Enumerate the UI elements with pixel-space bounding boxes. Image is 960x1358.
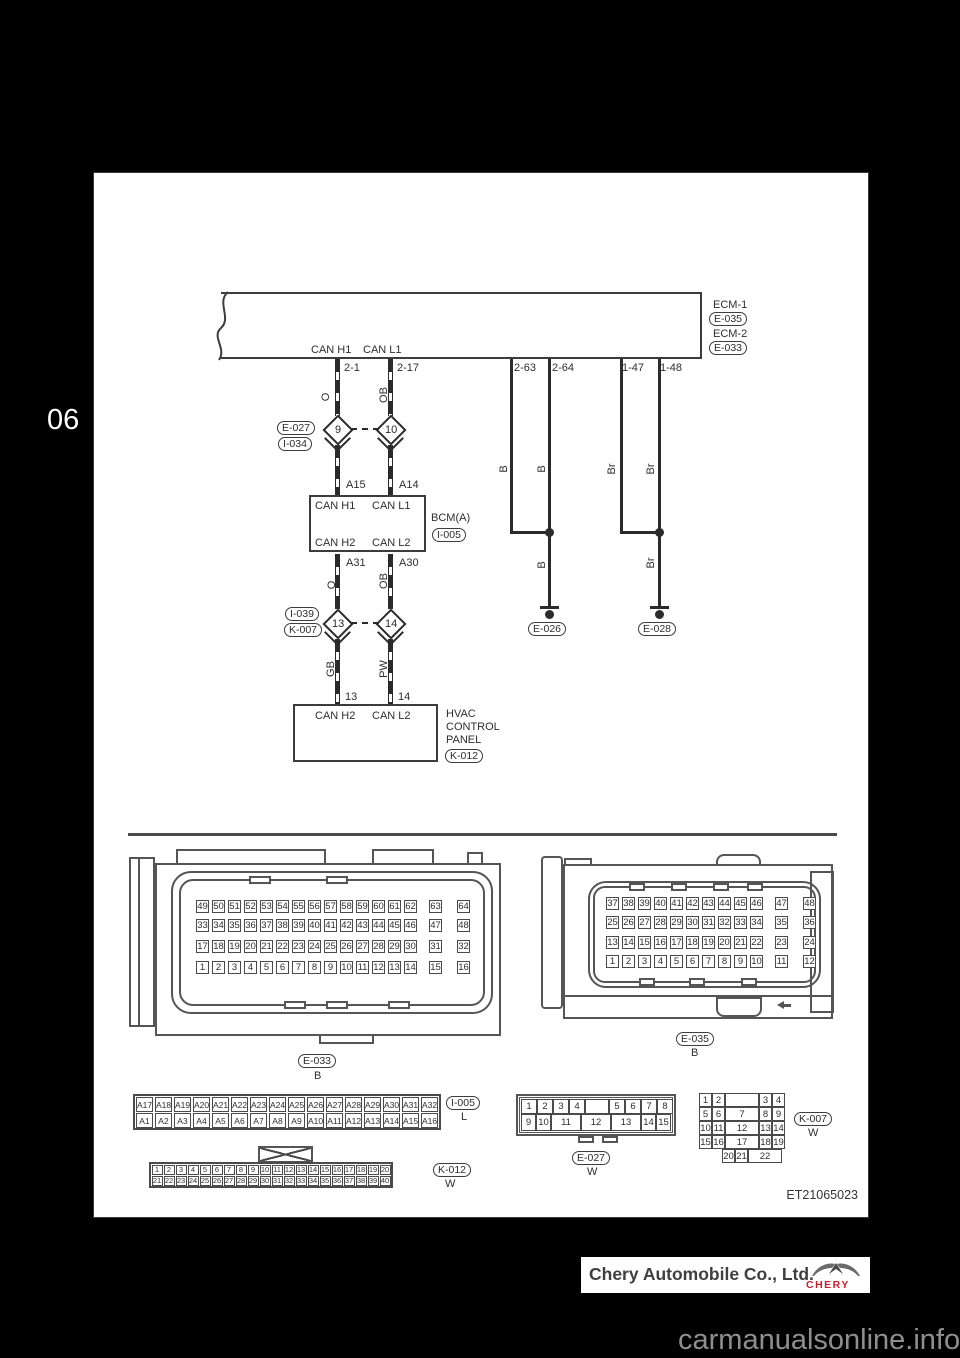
pin-cell: 20	[380, 1165, 391, 1175]
e033-housing-bracket-line	[138, 859, 140, 1025]
pin-cell: 20	[718, 936, 731, 949]
pin-cell: 29	[248, 1176, 259, 1186]
e033-notch	[326, 1001, 348, 1009]
pin-cell: 55	[292, 900, 305, 913]
e035-code: E-035	[676, 1032, 714, 1046]
ground-dot-icon	[655, 610, 664, 619]
pin-cell: A14	[383, 1113, 400, 1128]
bcm-connector-code: I-005	[432, 528, 466, 542]
pin-cell: 42	[686, 897, 699, 910]
pin-cell: A11	[326, 1113, 343, 1128]
pin-cell: 11	[356, 961, 369, 974]
e027-code: E-027	[572, 1151, 610, 1165]
wire-color-o: O	[325, 574, 339, 596]
pin-cell: 11	[712, 1121, 725, 1135]
wire-color-b: B	[535, 554, 549, 576]
watermark: carmanualsonline.info	[678, 1324, 960, 1357]
k012-keyway	[258, 1146, 313, 1163]
pin-cell: 51	[228, 900, 241, 913]
pin-cell: 36	[244, 919, 257, 932]
pin-cell: 28	[372, 940, 385, 953]
pin-cell: 15	[429, 961, 442, 974]
ground-code-e026: E-026	[528, 622, 566, 636]
pin-cell: 15	[320, 1165, 331, 1175]
pin-cell: 16	[457, 961, 470, 974]
pin-cell: 16	[712, 1135, 725, 1149]
pin-cell: 12	[581, 1114, 611, 1131]
pin-2-64: 2-64	[552, 362, 574, 374]
pin-cell: 36	[803, 916, 816, 929]
pin-cell: 3	[759, 1093, 772, 1107]
e027-pin-row: 9101112131415	[521, 1114, 671, 1131]
pin-cell: 16	[332, 1165, 343, 1175]
ground-dot-icon	[545, 610, 554, 619]
pin-a14: A14	[399, 479, 419, 491]
e033-notch	[326, 876, 348, 884]
pin-cell: 14	[641, 1114, 656, 1131]
pin-cell: 35	[775, 916, 788, 929]
pin-2-17: 2-17	[397, 362, 419, 374]
ecm1-connector-code: E-035	[709, 312, 747, 326]
k012-color: W	[445, 1178, 455, 1190]
pin-cell: 17	[196, 940, 209, 953]
pin-2-63: 2-63	[514, 362, 536, 374]
pin-cell: 50	[212, 900, 225, 913]
pin-cell: 1	[196, 961, 209, 974]
splice-code-e027: E-027	[277, 421, 315, 435]
section-divider	[128, 833, 837, 836]
wire-color-b: B	[497, 458, 511, 480]
pin-cell: 47	[429, 919, 442, 932]
pin-cell: A25	[288, 1097, 305, 1112]
pin-cell: 54	[276, 900, 289, 913]
pin-cell: 31	[272, 1176, 283, 1186]
can-h1-wire	[335, 445, 340, 495]
pin-cell: 38	[276, 919, 289, 932]
pin-cell: 63	[429, 900, 442, 913]
pin-cell: 40	[380, 1176, 391, 1186]
ecm2-connector-code: E-033	[709, 341, 747, 355]
pin-cell: 14	[404, 961, 417, 974]
pin-cell: 2	[537, 1099, 553, 1114]
pin-cell: 22	[748, 1149, 782, 1163]
pin-cell: 46	[404, 919, 417, 932]
pin-cell: 11	[272, 1165, 283, 1175]
e035-notch	[671, 883, 687, 891]
pin-cell: 1	[152, 1165, 163, 1175]
pin-cell: 47	[775, 897, 788, 910]
pin-cell: 32	[457, 940, 470, 953]
k007-pin-row: 1011121314	[699, 1121, 785, 1135]
pin-cell: 6	[212, 1165, 223, 1175]
pin-cell: 1	[606, 955, 619, 968]
pin-cell: 27	[356, 940, 369, 953]
ecm-can-l1-label: CAN L1	[363, 344, 402, 356]
pin-cell: 7	[224, 1165, 235, 1175]
pin-cell: 38	[622, 897, 635, 910]
pin-cell: 22	[276, 940, 289, 953]
pin-cell: 20	[722, 1149, 735, 1163]
pin-cell: 10	[750, 955, 763, 968]
e035-pin-row: 252627282930313233343536	[606, 916, 816, 929]
pin-cell: 8	[657, 1099, 673, 1114]
pin-cell: 29	[388, 940, 401, 953]
pin-cell: A1	[136, 1113, 153, 1128]
pin-cell: 9	[734, 955, 747, 968]
pin-cell: 22	[750, 936, 763, 949]
pin-cell: 13	[296, 1165, 307, 1175]
pin-cell: 5	[260, 961, 273, 974]
pin-cell: A32	[421, 1097, 438, 1112]
pin-cell: 15	[656, 1114, 671, 1131]
pin-cell: 36	[332, 1176, 343, 1186]
pin-cell: 29	[670, 916, 683, 929]
bcm-can-l2: CAN L2	[372, 537, 411, 549]
pin-cell: 25	[606, 916, 619, 929]
k007-pin-row: 202122	[722, 1149, 782, 1163]
pin-1-48: 1-48	[660, 362, 682, 374]
pin-cell: 9	[521, 1114, 536, 1131]
i005-color: L	[461, 1111, 467, 1123]
pin-cell: 7	[702, 955, 715, 968]
pin-cell: 53	[260, 900, 273, 913]
pin-cell: 31	[702, 916, 715, 929]
pin-cell: 28	[654, 916, 667, 929]
pin-cell: 43	[356, 919, 369, 932]
e035-color: B	[691, 1047, 698, 1059]
pin-cell: 35	[228, 919, 241, 932]
pin-cell: 44	[718, 897, 731, 910]
arrow-icon	[777, 1001, 791, 1009]
pin-cell: 7	[292, 961, 305, 974]
pin-cell: 19	[702, 936, 715, 949]
pin-cell: A22	[231, 1097, 248, 1112]
pin-cell: A3	[174, 1113, 191, 1128]
pin-cell: A28	[345, 1097, 362, 1112]
pin-cell: 3	[228, 961, 241, 974]
pin-cell: 12	[803, 955, 816, 968]
pin-a30: A30	[399, 557, 419, 569]
k007-color: W	[808, 1127, 818, 1139]
pin-cell: 27	[224, 1176, 235, 1186]
pin-cell: 13	[606, 936, 619, 949]
pin-cell: 18	[356, 1165, 367, 1175]
gnd-wire-1-47	[620, 359, 623, 534]
manual-page-scan: { "page": { "section_number": "06", "fig…	[0, 0, 960, 1358]
pin-cell: 23	[775, 936, 788, 949]
pin-cell: 30	[260, 1176, 271, 1186]
pin-cell: 2	[712, 1093, 725, 1107]
ground-icon	[650, 606, 669, 609]
pin-cell: 24	[188, 1176, 199, 1186]
pin-cell: 13	[759, 1121, 772, 1135]
pin-cell: 21	[152, 1176, 163, 1186]
pin-cell: A26	[307, 1097, 324, 1112]
wire-color-br: Br	[644, 458, 658, 480]
pin-cell: 58	[340, 900, 353, 913]
pin-cell: 24	[803, 936, 816, 949]
pin-cell: 26	[212, 1176, 223, 1186]
pin-a31: A31	[346, 557, 366, 569]
e027-pin-row: 12345678	[521, 1099, 673, 1114]
pin-cell: 38	[356, 1176, 367, 1186]
pin-cell: 21	[260, 940, 273, 953]
pin-cell: 24	[308, 940, 321, 953]
pin-cell: 48	[457, 919, 470, 932]
pin-cell: 30	[686, 916, 699, 929]
wire-color-br: Br	[644, 552, 658, 574]
e035-notch	[713, 883, 729, 891]
i005-connector: A17A18A19A20A21A22A23A24A25A26A27A28A29A…	[133, 1094, 441, 1130]
pin-cell: 16	[654, 936, 667, 949]
pin-cell: 15	[699, 1135, 712, 1149]
pin-cell: A6	[231, 1113, 248, 1128]
pin-cell: 5	[699, 1107, 712, 1121]
pin-cell: 32	[284, 1176, 295, 1186]
e035-housing-line	[565, 995, 831, 997]
splice-link	[351, 622, 379, 624]
pin-2-1: 2-1	[344, 362, 360, 374]
pin-cell: 14	[772, 1121, 785, 1135]
pin-1-47: 1-47	[622, 362, 644, 374]
pin-cell: A23	[250, 1097, 267, 1112]
ecm2-label: ECM-2	[713, 328, 747, 340]
pin-cell: A12	[345, 1113, 362, 1128]
hvac-name-2: CONTROL	[446, 721, 500, 733]
pin-cell: 7	[641, 1099, 657, 1114]
pin-cell: A8	[269, 1113, 286, 1128]
pin-cell: 17	[670, 936, 683, 949]
pin-cell: 60	[372, 900, 385, 913]
e033-pin-row: 49505152535455565758596061626364	[196, 900, 470, 913]
pin-cell: 40	[654, 897, 667, 910]
pin-cell: 5	[609, 1099, 625, 1114]
e035-notch	[639, 978, 655, 986]
k007-code: K-007	[794, 1112, 832, 1126]
wire-color-b: B	[535, 458, 549, 480]
pin-cell: 37	[344, 1176, 355, 1186]
e033-notch	[284, 1001, 306, 1009]
pin-cell: 13	[611, 1114, 641, 1131]
e027-color: W	[587, 1166, 597, 1178]
ecm-box	[221, 292, 702, 359]
junction-dot	[655, 528, 664, 537]
pin-cell: 14	[308, 1165, 319, 1175]
bcm-can-h2: CAN H2	[315, 537, 355, 549]
pin-cell: A30	[383, 1097, 400, 1112]
pin-cell: 1	[699, 1093, 712, 1107]
pin-cell: 37	[606, 897, 619, 910]
pin-cell: 43	[702, 897, 715, 910]
pin-cell: 57	[324, 900, 337, 913]
k012-code: K-012	[433, 1163, 471, 1177]
pin-cell: A21	[212, 1097, 229, 1112]
e035-housing-bar	[541, 856, 563, 1009]
pin-cell: 41	[670, 897, 683, 910]
wire-color-br: Br	[605, 458, 619, 480]
pin-cell: 5	[670, 955, 683, 968]
pin-cell: 21	[735, 1149, 748, 1163]
chery-logo-icon	[808, 1259, 864, 1279]
pin-cell: 7	[725, 1107, 759, 1121]
e033-code: E-033	[298, 1054, 336, 1068]
diagram-page: CAN H1 CAN L1 ECM-1 E-035 ECM-2 E-033 2-…	[93, 172, 869, 1218]
pin-14: 14	[398, 691, 410, 703]
e035-notch	[689, 978, 705, 986]
pin-cell: 35	[320, 1176, 331, 1186]
splice-code-i039: I-039	[285, 607, 319, 621]
hvac-name-3: PANEL	[446, 734, 481, 746]
pin-cell: 52	[244, 900, 257, 913]
pin-cell: 10	[340, 961, 353, 974]
pin-cell: A31	[402, 1097, 419, 1112]
k012-connector: 1234567891011121314151617181920 21222324…	[149, 1162, 393, 1188]
pin-cell: A29	[364, 1097, 381, 1112]
pin-cell: 5	[200, 1165, 211, 1175]
splice-link	[351, 428, 379, 430]
bcm-can-h1: CAN H1	[315, 500, 355, 512]
pin-cell: 62	[404, 900, 417, 913]
splice-code-k007: K-007	[284, 623, 322, 637]
bcm-can-l1: CAN L1	[372, 500, 411, 512]
pin-cell: 17	[725, 1135, 759, 1149]
company-name: Chery Automobile Co., Ltd.	[589, 1264, 814, 1285]
wire-color-ob: OB	[377, 384, 391, 406]
can-h1-wire	[335, 359, 340, 416]
e033-notch	[388, 1001, 410, 1009]
pin-cell: 3	[176, 1165, 187, 1175]
gnd-wire-1-48	[658, 359, 661, 606]
pin-cell: 12	[284, 1165, 295, 1175]
pin-cell: 25	[200, 1176, 211, 1186]
can-l1-wire	[388, 445, 393, 495]
pin-cell: 3	[638, 955, 651, 968]
e033-pin-row: 33343536373839404142434445464748	[196, 919, 470, 932]
pin-cell: 8	[759, 1107, 772, 1121]
pin-cell: 44	[372, 919, 385, 932]
pin-cell: 25	[324, 940, 337, 953]
pin-cell: 19	[772, 1135, 785, 1149]
bcm-name: BCM(A)	[431, 512, 470, 524]
pin-cell: A18	[155, 1097, 172, 1112]
pin-cell: 23	[176, 1176, 187, 1186]
pin-a15: A15	[346, 479, 366, 491]
gnd-wire-2-63	[510, 359, 513, 534]
pin-cell: 15	[638, 936, 651, 949]
pin-cell: 3	[553, 1099, 569, 1114]
pin-cell: 2	[622, 955, 635, 968]
pin-cell: 6	[686, 955, 699, 968]
pin-cell: 10	[699, 1121, 712, 1135]
pin-cell: A2	[155, 1113, 172, 1128]
e033-housing-bracket	[129, 857, 155, 1027]
e027-housing-tab	[602, 1136, 618, 1143]
pin-cell: 41	[324, 919, 337, 932]
pin-cell: 20	[244, 940, 257, 953]
pin-cell: 26	[622, 916, 635, 929]
pin-cell: 33	[734, 916, 747, 929]
pin-cell: 2	[212, 961, 225, 974]
pin-cell: 11	[551, 1114, 581, 1131]
pin-cell: 18	[759, 1135, 772, 1149]
pin-cell: 4	[654, 955, 667, 968]
wire-color-o: O	[319, 386, 333, 408]
ecm-can-h1-label: CAN H1	[311, 344, 351, 356]
pin-cell: 26	[340, 940, 353, 953]
pin-cell: 6	[712, 1107, 725, 1121]
pin-cell: A19	[174, 1097, 191, 1112]
pin-cell: A16	[421, 1113, 438, 1128]
e035-notch	[741, 978, 757, 986]
pin-cell: 1	[521, 1099, 537, 1114]
pin-cell: 9	[772, 1107, 785, 1121]
e033-notch	[249, 876, 271, 884]
pin-cell: 22	[164, 1176, 175, 1186]
pin-cell: 11	[775, 955, 788, 968]
hvac-name-1: HVAC	[446, 708, 476, 720]
wire-color-gb: GB	[324, 658, 338, 680]
pin-cell: 6	[625, 1099, 641, 1114]
pin-cell: 61	[388, 900, 401, 913]
wire-color-ob: OB	[377, 570, 391, 592]
pin-cell: 8	[718, 955, 731, 968]
pin-cell: 37	[260, 919, 273, 932]
pin-cell: 34	[750, 916, 763, 929]
pin-cell: 45	[734, 897, 747, 910]
pin-cell: 21	[734, 936, 747, 949]
hvac-can-l2: CAN L2	[372, 710, 411, 722]
pin-cell: 64	[457, 900, 470, 913]
pin-cell: 23	[292, 940, 305, 953]
pin-cell: A15	[402, 1113, 419, 1128]
pin-cell: 33	[196, 919, 209, 932]
pin-cell: A10	[307, 1113, 324, 1128]
pin-cell: 39	[638, 897, 651, 910]
ecm1-label: ECM-1	[713, 299, 747, 311]
pin-cell: 12	[725, 1121, 759, 1135]
pin-cell: 17	[344, 1165, 355, 1175]
pin-cell: 6	[276, 961, 289, 974]
pin-cell: 56	[308, 900, 321, 913]
e033-color: B	[314, 1070, 321, 1082]
figure-code: ET21065023	[738, 1188, 858, 1202]
pin-cell: 18	[686, 936, 699, 949]
section-number: 06	[47, 404, 79, 437]
ground-icon	[540, 606, 559, 609]
pin-cell: 18	[212, 940, 225, 953]
pin-cell: A24	[269, 1097, 286, 1112]
pin-cell: 34	[308, 1176, 319, 1186]
pin-cell: 13	[388, 961, 401, 974]
pin-cell: 32	[718, 916, 731, 929]
hvac-can-h2: CAN H2	[315, 710, 355, 722]
k007-pin-row: 1516171819	[699, 1135, 785, 1149]
pin-cell: 9	[324, 961, 337, 974]
ecm-box-break-edge	[212, 290, 232, 362]
pin-cell: 33	[296, 1176, 307, 1186]
pin-cell: A4	[193, 1113, 210, 1128]
e035-notch	[629, 883, 645, 891]
e035-pin-row: 131415161718192021222324	[606, 936, 816, 949]
pin-cell: 42	[340, 919, 353, 932]
pin-cell: 31	[429, 940, 442, 953]
e027-housing-tab	[578, 1136, 594, 1143]
pin-cell: 59	[356, 900, 369, 913]
pin-cell: 27	[638, 916, 651, 929]
junction-dot	[545, 528, 554, 537]
chery-logo-text: CHERY	[806, 1279, 850, 1291]
pin-cell: 39	[368, 1176, 379, 1186]
